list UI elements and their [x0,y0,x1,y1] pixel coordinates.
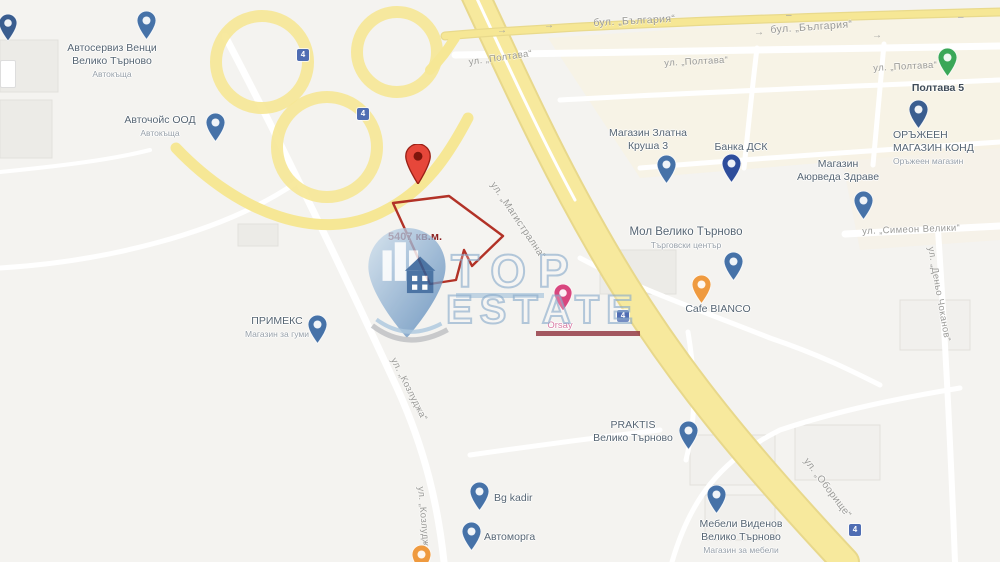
avtomorga-pin[interactable] [462,522,481,556]
orsay-shop-label[interactable]: Orsay [460,320,660,332]
banka-dsk-pin[interactable] [722,154,741,188]
praktis-label[interactable]: PRAKTISВелико Търново [533,419,733,445]
cafe-bianco-label[interactable]: Cafe BIANCO [618,303,818,316]
selected-location-marker[interactable] [404,144,432,184]
magazin-zlatna-krusha-pin[interactable] [657,155,676,189]
primeks-pin[interactable] [308,315,327,349]
mol-veliko-tarnovo-pin[interactable] [724,252,743,286]
poltava-5-pin[interactable] [938,48,957,82]
praktis-pin[interactable] [679,421,698,455]
poltava-5-label[interactable]: Полтава 5 [838,82,1000,95]
mol-veliko-tarnovo-label[interactable]: Мол Велико ТърновоТърговски център [586,225,786,250]
mebeli-videnov-label[interactable]: Мебели ВиденовВелико ТърновоМагазин за м… [641,518,841,555]
avtochois-ood-pin[interactable] [206,113,225,147]
cafe-bianco-pin[interactable] [692,275,711,309]
mebeli-videnov-pin[interactable] [707,485,726,519]
orsay-shop-pin[interactable] [554,284,572,316]
orazheen-magazin-kond-pin[interactable] [909,100,928,134]
bg-kadir-label[interactable]: Bg kadir [494,492,533,505]
dark-pin-topleft-pin[interactable] [0,14,17,46]
parcel-area-label: 5407 кв.м. [388,231,442,243]
avtoserviz-venci-pin[interactable] [137,11,156,45]
orange-pin-bottom-pin[interactable] [412,545,431,562]
bg-kadir-pin[interactable] [470,482,489,516]
orazheen-magazin-kond-label[interactable]: ОРЪЖЕЕНМАГАЗИН КОНДОръжеен магазин [893,129,974,166]
map-canvas[interactable]: 5407 кв.м. [0,0,1000,562]
avtochois-ood-label[interactable]: Авточойс ООДАвтокъща [60,114,260,138]
avtoserviz-venci-label[interactable]: Автосервиз ВенциВелико ТърновоАвтокъща [12,42,212,79]
primeks-label[interactable]: ПРИМЕКСМагазин за гуми [177,315,377,339]
magazin-ayurveda-zdrave-pin[interactable] [854,191,873,225]
banka-dsk-label[interactable]: Банка ДСК [641,141,841,154]
avtomorga-label[interactable]: Автоморга [484,531,535,544]
